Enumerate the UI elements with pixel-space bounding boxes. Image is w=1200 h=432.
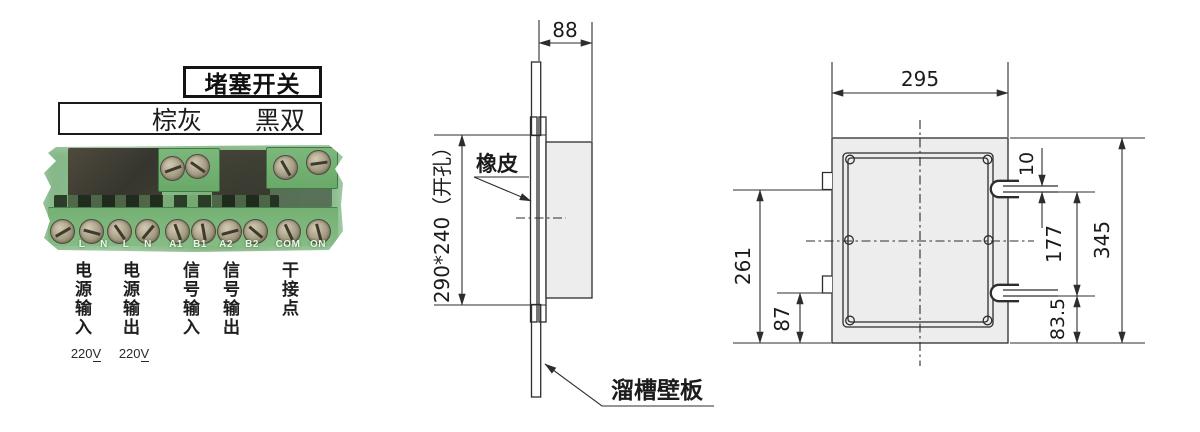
- dim-slot-pitch: 177: [1042, 225, 1066, 263]
- dim-opening: 290*240（开孔）: [430, 137, 454, 303]
- dimension-drawings: 88 290*240（开孔） 橡皮 溜槽壁板: [0, 0, 1200, 432]
- dim-tab-top: 261: [731, 247, 755, 285]
- dim-tab-bottom: 87: [770, 306, 794, 331]
- mounting-flange: [539, 117, 546, 322]
- mount-tab-top: [823, 173, 833, 190]
- front-view-drawing: 295 261 87 10 177 83.5 345: [731, 62, 1145, 366]
- bolt-slot-top: [991, 181, 1019, 197]
- dim-slot-width: 10: [1016, 152, 1038, 176]
- wall-label: 溜槽壁板: [611, 377, 704, 404]
- switch-body: [546, 142, 592, 298]
- dim-width: 295: [901, 67, 939, 91]
- rubber-leader: [474, 177, 531, 201]
- figure-canvas: 堵塞开关 棕灰 黑双 L N L N A1 B1 A: [0, 0, 1200, 432]
- dim-depth: 88: [552, 18, 577, 42]
- rubber-gasket: [531, 117, 538, 322]
- bolt-slot-bottom: [991, 285, 1019, 301]
- rubber-label: 橡皮: [476, 152, 518, 176]
- side-view-drawing: 88 290*240（开孔） 橡皮 溜槽壁板: [430, 18, 714, 406]
- dim-slot-bottom: 83.5: [1047, 298, 1069, 340]
- dim-height: 345: [1090, 221, 1114, 259]
- mount-tab-bottom: [823, 276, 833, 293]
